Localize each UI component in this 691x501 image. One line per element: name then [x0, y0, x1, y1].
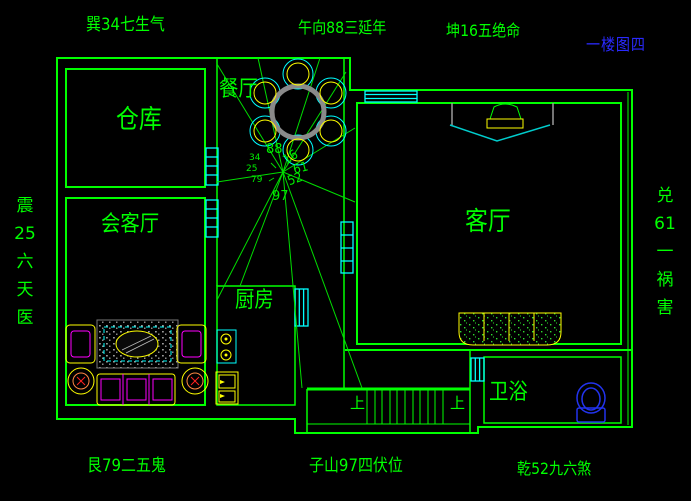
walls	[57, 58, 632, 433]
reception-rug	[97, 320, 178, 368]
reception-armchair-left	[66, 325, 95, 363]
compass-star-rays	[217, 58, 362, 388]
floor-plan-drawing	[0, 0, 691, 501]
kitchen-sink	[216, 372, 238, 404]
door-bathroom	[471, 358, 484, 381]
toilet	[577, 383, 605, 422]
kitchen-walls	[217, 286, 295, 405]
living-sofa	[459, 313, 561, 345]
window-living-left	[341, 222, 353, 273]
floor-plan-canvas: 巽34七生气 午向88三延年 坤16五绝命 一楼图四 震 25 六 天 医 兑 …	[0, 0, 691, 501]
window-living-top	[365, 91, 417, 102]
reception-armchair-right	[177, 325, 206, 363]
window-reception-wall	[206, 200, 218, 237]
kitchen-stove	[217, 330, 236, 363]
tv-cabinet	[450, 103, 553, 141]
window-storage-wall-upper	[206, 148, 218, 185]
door-kitchen	[295, 289, 308, 326]
bathroom-walls	[484, 357, 621, 423]
living-room-walls	[357, 103, 621, 344]
staircase	[307, 389, 470, 424]
storage-room-walls	[66, 69, 205, 187]
reception-sofa	[97, 374, 175, 405]
plant-stool-left	[68, 368, 94, 394]
